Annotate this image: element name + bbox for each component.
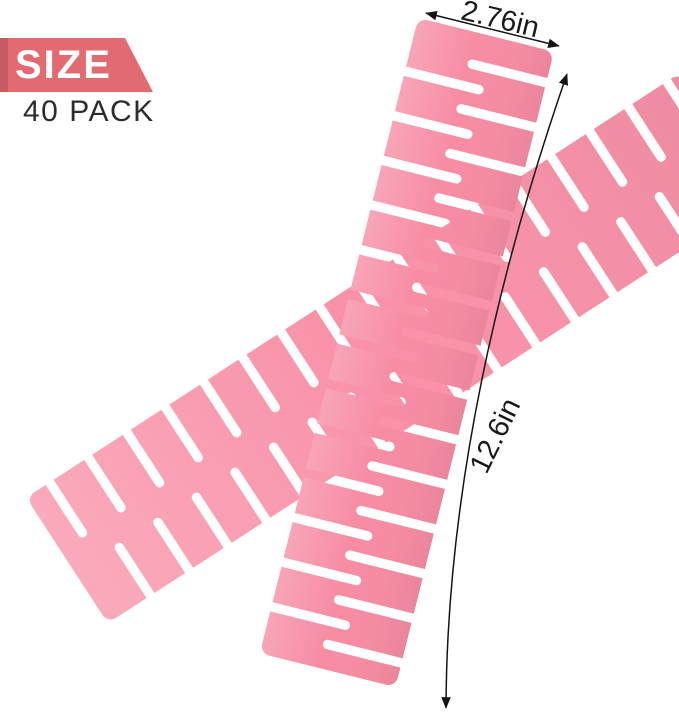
product-image: SIZE 40 PACK 2.76in 12.6in [0, 0, 679, 717]
size-badge-label: SIZE [15, 38, 112, 92]
pack-count-label: 40 PACK [23, 95, 155, 129]
